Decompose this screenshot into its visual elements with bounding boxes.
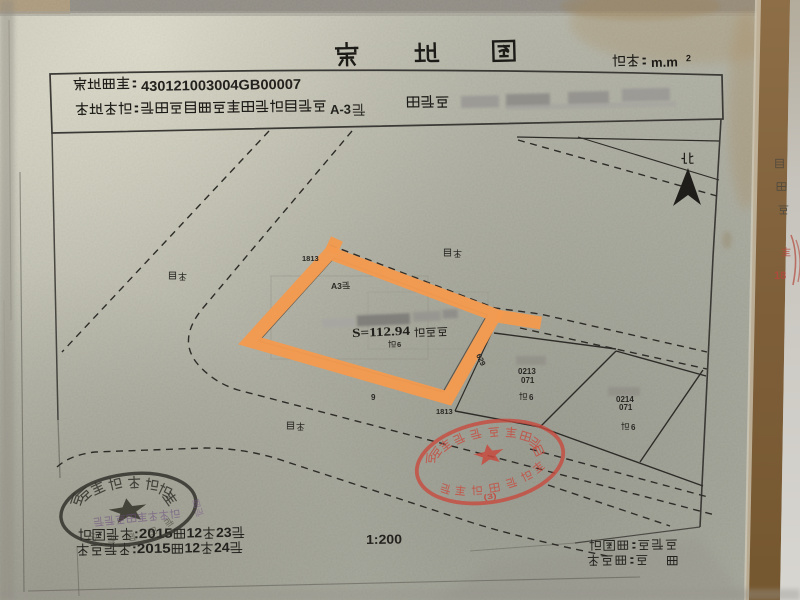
svg-text:2: 2 [686, 53, 691, 63]
svg-text::: : [132, 100, 140, 115]
svg-text:0213: 0213 [518, 367, 536, 376]
svg-text:1:200: 1:200 [366, 531, 402, 547]
svg-text::: : [130, 75, 138, 90]
svg-text:12: 12 [184, 540, 200, 555]
svg-text:A3: A3 [331, 281, 342, 291]
svg-text:6: 6 [631, 423, 636, 432]
svg-text:6: 6 [397, 340, 401, 349]
svg-text:m.m: m.m [651, 54, 678, 70]
svg-text::: : [630, 538, 637, 552]
svg-text:430121003004GB00007: 430121003004GB00007 [141, 76, 301, 94]
svg-text:1813: 1813 [436, 407, 453, 416]
svg-text:071: 071 [521, 376, 535, 385]
svg-text:1813: 1813 [302, 254, 319, 263]
svg-text:12: 12 [186, 525, 202, 540]
svg-text::: : [628, 553, 635, 567]
svg-text:23: 23 [216, 525, 232, 540]
svg-text::: : [640, 52, 648, 67]
svg-text:6: 6 [529, 393, 534, 402]
svg-text:9: 9 [371, 393, 376, 402]
svg-text:24: 24 [214, 540, 230, 555]
svg-text:071: 071 [619, 403, 633, 412]
svg-text:A-3: A-3 [330, 102, 351, 117]
svg-text:18: 18 [774, 270, 786, 282]
svg-text:S=112.94: S=112.94 [352, 324, 411, 341]
